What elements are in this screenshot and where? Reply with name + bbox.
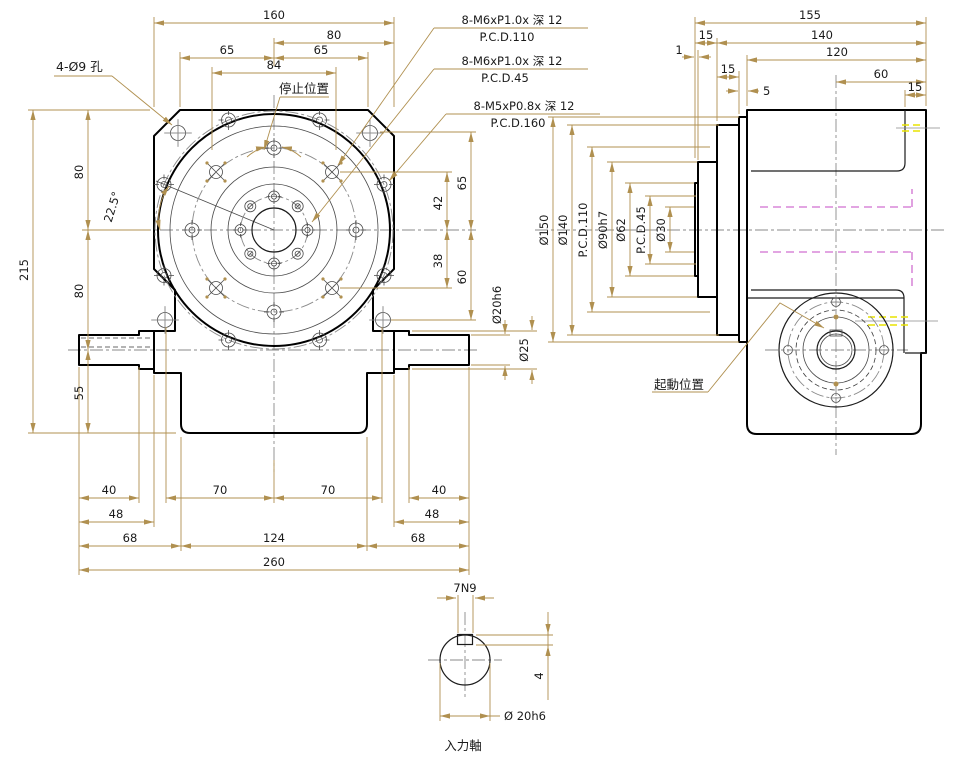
dim-60: 60 [455,270,469,285]
callout-pcd110-line2: P.C.D.110 [480,30,535,44]
dim-68-right: 68 [411,531,426,545]
dim-68-left: 68 [123,531,138,545]
side-internal-wall [751,110,905,171]
front-view: 160 80 65 65 84 215 80 80 55 22.5° 42 38… [17,8,600,575]
cam-indexer-drawing: 160 80 65 65 84 215 80 80 55 22.5° 42 38… [0,0,956,768]
dim-120: 120 [826,45,848,59]
dim-60-side: 60 [874,67,889,81]
dim-55: 55 [72,386,86,401]
callout-pcd160-line1: 8-M5xP0.8x 深 12 [474,99,575,113]
dim-140-depth: 140 [811,28,833,42]
dim-dia-20h6: Ø20h6 [490,286,504,324]
dim-dia20h6-detail: Ø 20h6 [504,709,546,723]
dim-48-left: 48 [109,507,124,521]
flange-disc-150 [739,117,747,342]
dim-160: 160 [263,8,285,22]
dim-215: 215 [17,259,31,281]
input-shaft-detail: 7N9 4 Ø 20h6 入力軸 [428,581,553,753]
side-view: 155 15 140 1 120 15 5 60 15 Ø150 Ø140 P.… [535,8,945,455]
detail-extension-lines [440,595,553,721]
dim-65-left: 65 [220,43,235,57]
dim-15-a: 15 [699,28,714,42]
drawing-canvas: 160 80 65 65 84 215 80 80 55 22.5° 42 38… [0,0,956,768]
dim-124: 124 [263,531,285,545]
dim-angle-22-5: 22.5° [101,190,124,224]
shaft-keyway-hidden-lines [81,338,150,347]
dim-1: 1 [675,43,682,57]
dim-80-top: 80 [327,28,342,42]
side-extension-lines [548,17,926,342]
dim-80-upper: 80 [72,165,86,180]
callout-pcd160-line2: P.C.D.160 [491,116,546,130]
datum-marks-gray [855,128,940,321]
stop-position-label: 停止位置 [279,81,329,96]
dim-38: 38 [431,254,445,269]
input-shaft-label: 入力軸 [444,738,482,753]
detail-dimension-lines [437,598,548,716]
detail-centerlines [428,612,502,700]
dim-40-left: 40 [102,483,117,497]
hub-90h7 [698,162,717,297]
dim-84: 84 [267,58,282,72]
dim-dia-25: Ø25 [517,338,531,362]
dia-62: Ø62 [614,218,628,242]
dim-4: 4 [532,672,546,679]
hole-note-label: 4-Ø9 孔 [56,59,103,74]
dia-pcd110: P.C.D.110 [576,203,590,258]
dim-7n9: 7N9 [453,581,476,595]
dim-260: 260 [263,555,285,569]
dim-15-c: 15 [908,80,923,94]
front-centerlines [68,95,480,472]
dim-70-left: 70 [213,483,228,497]
dim-155: 155 [799,8,821,22]
dim-42: 42 [431,196,445,211]
dim-48-right: 48 [425,507,440,521]
side-cavity-bottom [747,290,926,353]
dia-150: Ø150 [537,214,551,245]
dia-30: Ø30 [654,218,668,242]
dia-90h7: Ø90h7 [596,211,610,249]
dim-5: 5 [763,84,770,98]
callout-pcd45-line1: 8-M6xP1.0x 深 12 [462,54,563,68]
dia-140: Ø140 [556,214,570,245]
start-position-label: 起動位置 [654,377,704,392]
dim-80-lower: 80 [72,284,86,299]
dim-65-vertical: 65 [455,176,469,191]
datum-marks-yellow [868,125,924,325]
dim-40-right: 40 [432,483,447,497]
dim-15-b: 15 [721,62,736,76]
dim-70-right: 70 [321,483,336,497]
callout-pcd110-line1: 8-M6xP1.0x 深 12 [462,13,563,27]
angle-reference-ray [156,181,274,230]
callout-pcd45-line2: P.C.D.45 [481,71,529,85]
hub-face-62 [695,183,698,276]
dim-65-right: 65 [314,43,329,57]
dia-pcd45: P.C.D.45 [634,206,648,254]
